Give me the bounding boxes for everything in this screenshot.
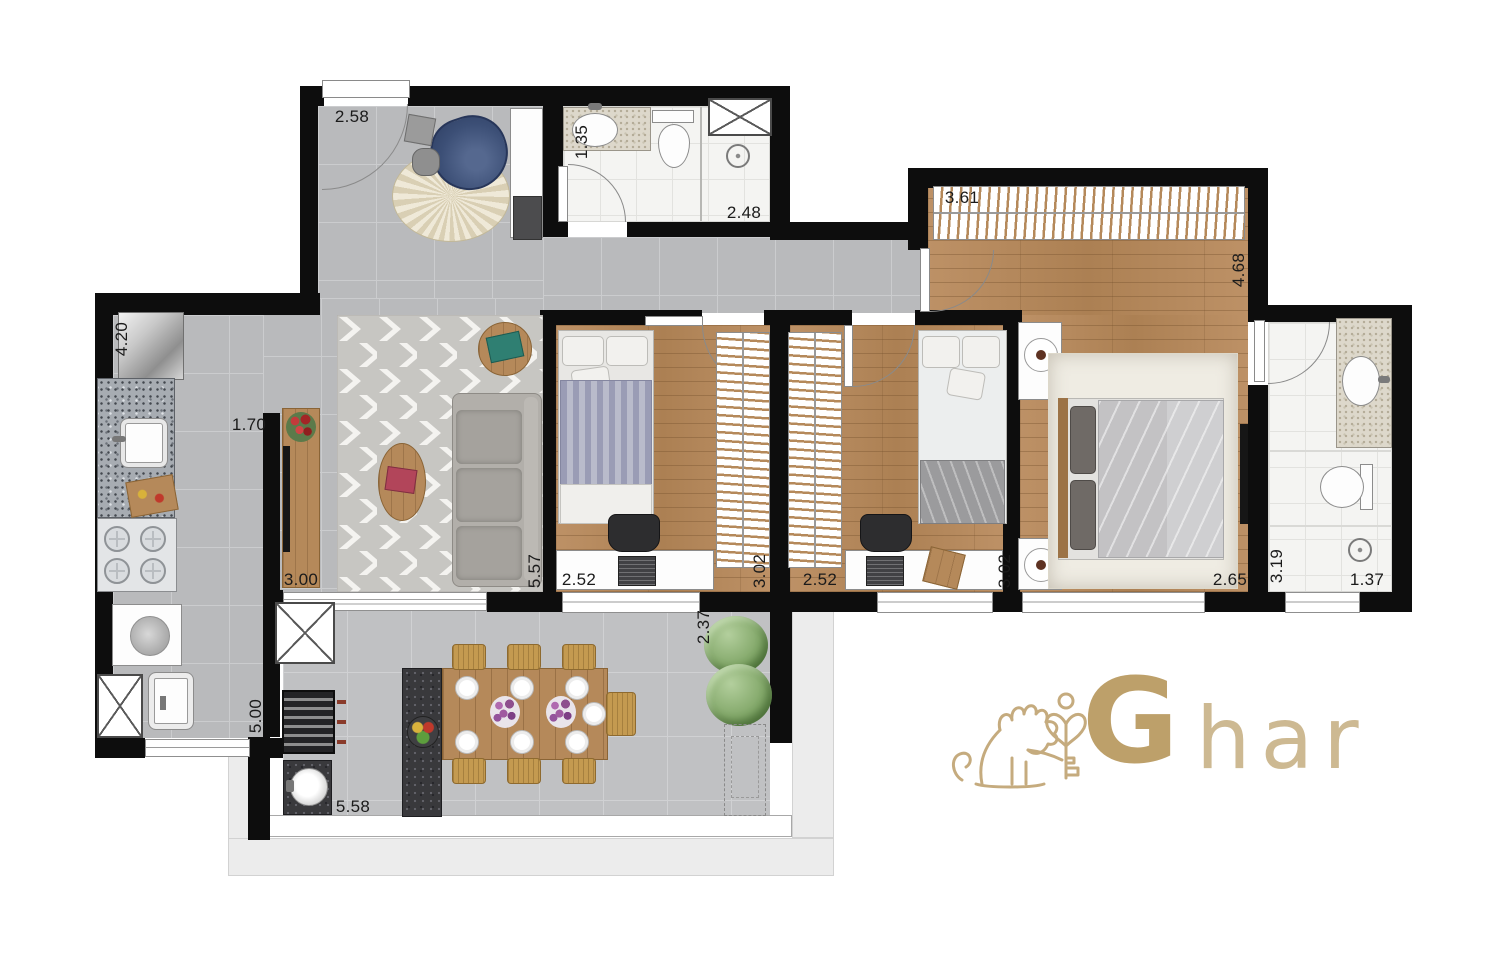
grill-knob: [337, 740, 346, 744]
bathroom2-divider2: [1270, 525, 1392, 527]
logo-text: har: [1196, 696, 1369, 782]
wall: [770, 86, 790, 237]
dim-kitchen-corr: 5.00: [246, 699, 266, 733]
wall: [1392, 305, 1412, 612]
sofa-cushion: [456, 410, 522, 464]
wall: [540, 592, 562, 612]
sofa-cushion: [456, 526, 522, 580]
logo-letter-g: G: [1082, 662, 1179, 780]
bedroom1-window: [562, 592, 700, 613]
bathroom2-door: [1254, 320, 1265, 382]
wall: [263, 413, 280, 737]
plate: [582, 702, 606, 726]
bathroom1-faucet: [588, 103, 602, 110]
hallway-floor: [543, 237, 923, 313]
kitchen-sink: [120, 418, 168, 468]
bedroom1-door: [645, 316, 703, 326]
balcony-railing: [264, 815, 792, 837]
bathroom2-divider1: [1270, 450, 1392, 452]
dim-living-length: 5.57: [525, 554, 545, 588]
dim-bath2-length: 3.19: [1267, 549, 1287, 583]
wall: [563, 222, 568, 237]
bed2-pillow-2: [962, 336, 1000, 368]
wall: [627, 222, 770, 237]
plate: [510, 676, 534, 700]
laundry-tub: [148, 672, 194, 730]
shaft-balcony: [275, 602, 335, 664]
balcony-sink: [290, 768, 328, 806]
toilet1-tank: [652, 110, 694, 123]
master-headboard: [1058, 398, 1068, 558]
plate: [455, 676, 479, 700]
bedroom2-wardrobe: [788, 332, 842, 568]
shaft-kitchen: [97, 674, 143, 738]
master-wardrobe: [933, 186, 1245, 240]
coffee-table-books: [384, 466, 417, 494]
bedroom2-chair: [860, 514, 912, 552]
sideboard-flowers: [286, 412, 316, 442]
master-door: [920, 248, 930, 312]
laundry-window: [145, 739, 250, 757]
stove-burner: [104, 558, 130, 584]
kitchen-faucet: [112, 436, 126, 442]
wall: [993, 592, 1022, 612]
dim-master-width: 3.61: [945, 188, 979, 208]
bedroom2-window: [877, 592, 993, 613]
dim-bath2-width: 1.37: [1350, 570, 1384, 590]
master-pillow-1: [1070, 406, 1096, 474]
bathroom1-door: [558, 166, 568, 222]
bed1-pillow-1: [562, 336, 604, 366]
grill-knob: [337, 720, 346, 724]
dim-balcony-width: 5.58: [336, 797, 370, 817]
wall: [300, 86, 318, 298]
toilet2-bowl: [1320, 466, 1364, 508]
bedroom1-wardrobe: [716, 332, 770, 568]
dim-master-bed-wall: 2.65: [1213, 570, 1247, 590]
wall: [1248, 385, 1268, 592]
entry-door: [322, 80, 410, 98]
floor-plan: 2.58 1.35 2.48 3.61 4.68 4.20 1.70 3.00 …: [0, 0, 1500, 962]
master-duvet: [1098, 400, 1224, 558]
bedroom2-door: [844, 325, 853, 387]
plate: [510, 730, 534, 754]
bathroom2-window: [1285, 592, 1360, 613]
balcony-slab-right: [792, 608, 834, 838]
master-pillow-2: [1070, 480, 1096, 550]
dining-chair: [507, 644, 541, 670]
wall: [908, 168, 1268, 188]
grill-knob: [337, 700, 346, 704]
bedroom1-laptop: [618, 556, 656, 586]
intercom-speaker: [412, 148, 440, 176]
dining-chair-head: [606, 692, 636, 736]
bedroom1-chair: [608, 514, 660, 552]
oven-plate: [130, 616, 170, 656]
wall: [1205, 592, 1268, 612]
shower1-head: [726, 144, 750, 168]
balcony-slab-bottom: [228, 838, 834, 876]
stove-burner: [140, 526, 166, 552]
wall: [1248, 168, 1268, 322]
stove-burner: [140, 558, 166, 584]
wall: [95, 738, 145, 758]
dim-balcony-depth: 2.37: [694, 610, 714, 644]
lounger-outline-inner: [731, 736, 759, 798]
dim-bedroom1-width: 2.52: [562, 570, 596, 590]
dim-bedroom2-width: 2.52: [803, 570, 837, 590]
dining-chair: [562, 758, 596, 784]
entry-mat: [513, 196, 542, 240]
dining-chair: [452, 644, 486, 670]
table-flowers: [546, 696, 576, 728]
fruit-bowl: [407, 716, 439, 748]
bathroom2-sink: [1342, 356, 1380, 406]
dim-bedroom1-length: 3.02: [750, 554, 770, 588]
wall: [1360, 592, 1412, 612]
plant: [706, 664, 772, 726]
dim-kitchen-width: 1.70: [232, 415, 266, 435]
plate: [455, 730, 479, 754]
master-window: [1022, 592, 1205, 613]
dim-kitchen-length: 4.20: [112, 322, 132, 356]
bed1-blanket: [560, 380, 652, 486]
bed1-pillow-2: [606, 336, 648, 366]
master-tv: [1240, 424, 1248, 524]
dim-bath1-length: 2.48: [727, 203, 761, 223]
bed2-pillow-1: [922, 336, 960, 368]
shower1-divider: [700, 107, 702, 221]
dim-master-length: 4.68: [1229, 253, 1249, 287]
dim-bath1-width: 1.35: [572, 125, 592, 159]
bathroom2-faucet: [1378, 376, 1390, 383]
dim-entry-width: 2.58: [335, 107, 369, 127]
bed2-blanket: [920, 460, 1005, 524]
wall: [248, 737, 270, 840]
dining-chair: [452, 758, 486, 784]
bed2-pillow-3: [946, 367, 986, 401]
plate: [565, 676, 589, 700]
wall: [770, 608, 792, 743]
dim-living-width: 3.00: [284, 570, 318, 590]
grill: [282, 690, 335, 754]
wall: [487, 590, 540, 612]
wall: [770, 315, 790, 592]
laundry-faucet: [160, 696, 166, 710]
wall: [300, 86, 324, 106]
wall: [770, 222, 928, 240]
shower2-head: [1348, 538, 1372, 562]
sofa-cushion: [456, 468, 522, 522]
table-flowers: [490, 696, 520, 728]
bedroom2-laptop: [866, 556, 904, 586]
balcony-sink-faucet: [286, 780, 294, 792]
intercom-panel: [404, 114, 436, 146]
duct-shaft: [708, 98, 772, 136]
stove-burner: [104, 526, 130, 552]
plate: [565, 730, 589, 754]
tv: [283, 446, 290, 552]
dining-chair: [507, 758, 541, 784]
dining-chair: [562, 644, 596, 670]
dim-bedroom2-length: 3.02: [995, 554, 1015, 588]
